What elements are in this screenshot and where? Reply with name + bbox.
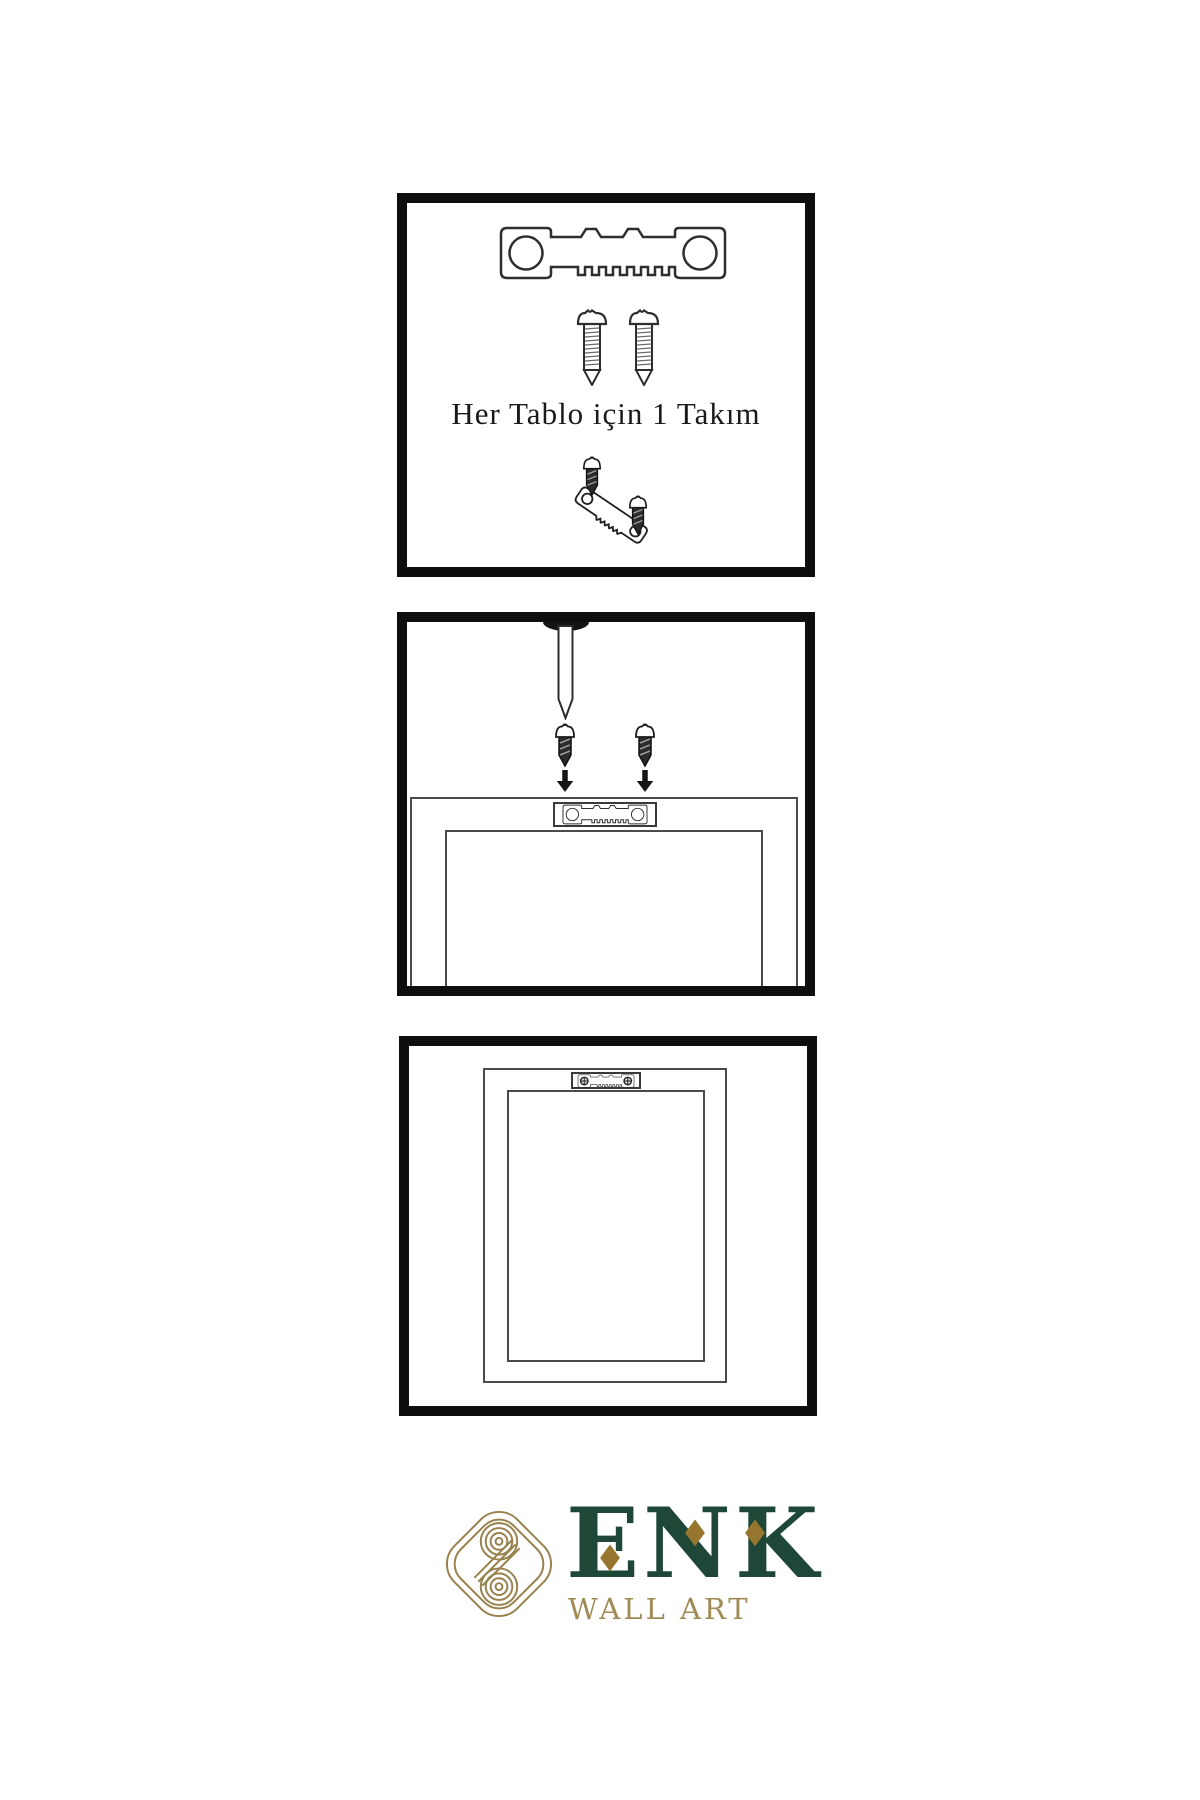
screw-icon (627, 308, 661, 386)
knot-logo-icon (435, 1498, 563, 1630)
arrow-down-icon (636, 770, 654, 792)
small-screw-icon (582, 455, 602, 497)
frame-back-inner-edge (507, 1090, 705, 1362)
hang-panel (399, 1036, 817, 1416)
small-screw-icon (628, 494, 648, 536)
small-screw-icon (554, 722, 576, 768)
install-panel (397, 612, 815, 996)
screw-icon (575, 308, 609, 386)
kit-panel: Her Tablo için 1 Takım (397, 193, 815, 577)
sawtooth-hanger-icon (497, 225, 729, 281)
diamond-icon: ◆ (685, 1513, 705, 1548)
instruction-sheet: Her Tablo için 1 Takım (0, 0, 1200, 1800)
frame-back-inner-edge (445, 830, 763, 986)
brand-tagline: WALL ART (568, 1595, 751, 1624)
diamond-icon: ◆ (745, 1513, 765, 1548)
small-screw-icon (634, 722, 656, 768)
frame-back-icon (483, 1068, 727, 1383)
arrow-down-icon (556, 770, 574, 792)
kit-caption: Her Tablo için 1 Takım (407, 396, 805, 432)
diamond-icon: ◆ (600, 1538, 620, 1573)
mounted-sawtooth-hanger-icon (571, 1072, 641, 1089)
nail-icon (557, 625, 574, 720)
sawtooth-hanger-icon (553, 802, 657, 827)
